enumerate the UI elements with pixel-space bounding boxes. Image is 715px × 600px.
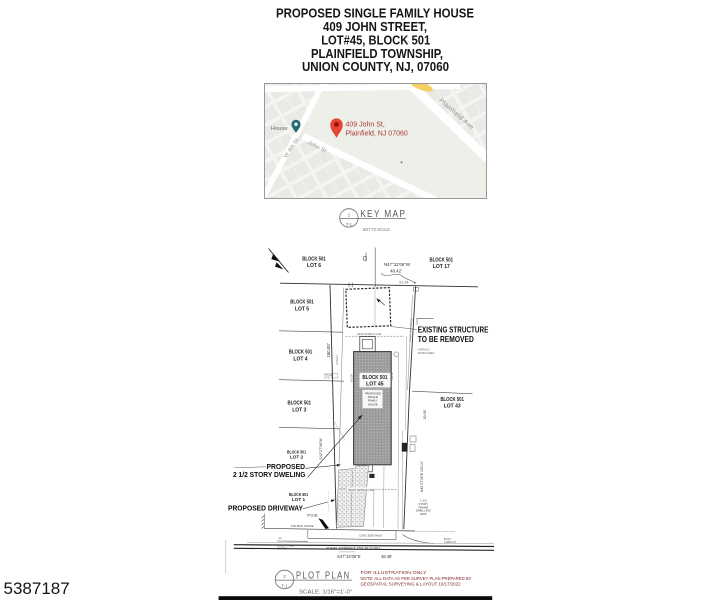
svg-text:LOT 17: LOT 17 <box>433 264 450 270</box>
svg-text:LOT 2: LOT 2 <box>290 455 304 460</box>
svg-text:EL 24: EL 24 <box>400 281 409 285</box>
svg-text:0.7'N: 0.7'N <box>324 377 330 380</box>
svg-text:150.00': 150.00' <box>326 343 331 357</box>
svg-text:N47°32'06"W: N47°32'06"W <box>384 262 411 267</box>
svg-text:TO BE REMOVED: TO BE REMOVED <box>418 335 474 344</box>
svg-text:FRONT SETBACK LINE: FRONT SETBACK LINE <box>348 489 374 492</box>
svg-text:2 1/2 STORY DWELING: 2 1/2 STORY DWELING <box>233 470 306 479</box>
svg-text:BLOCK 501: BLOCK 501 <box>302 256 326 262</box>
svg-text:BLOCK 501: BLOCK 501 <box>290 300 314 306</box>
svg-text:24: 24 <box>279 536 282 540</box>
svg-text:BLOCK 501: BLOCK 501 <box>289 350 313 356</box>
svg-text:PLOT PLAN: PLOT PLAN <box>296 571 351 582</box>
svg-text:S47°32'06"E: S47°32'06"E <box>337 554 361 559</box>
svg-text:EXISTING STRUCTURE: EXISTING STRUCTURE <box>418 325 489 334</box>
svg-text:BLOCK 501: BLOCK 501 <box>362 375 387 381</box>
svg-text:LOT 45: LOT 45 <box>366 382 384 388</box>
svg-text:S42°27'06"W: S42°27'06"W <box>319 438 323 460</box>
svg-text:BLOCK 501: BLOCK 501 <box>440 397 464 403</box>
svg-text:BLOCK 501: BLOCK 501 <box>288 401 312 407</box>
svg-text:48.42': 48.42' <box>390 269 402 274</box>
svg-text:LOT 6: LOT 6 <box>307 263 321 269</box>
svg-text:LOT 1: LOT 1 <box>292 497 306 502</box>
svg-text:Plainfield, NJ 07060: Plainfield, NJ 07060 <box>346 131 408 138</box>
svg-text:CONC SIDE WALK: CONC SIDE WALK <box>359 533 382 537</box>
svg-text:GEOSPATIAL SURVEYING & LAYOUT: GEOSPATIAL SURVEYING & LAYOUT 10/17/2022 <box>361 582 461 587</box>
svg-text:N42°27'06"E 150.00': N42°27'06"E 150.00' <box>420 461 424 493</box>
svg-text:101.50': 101.50' <box>390 371 394 380</box>
svg-text:NOTE: ALL DATA AS PER SURVEY P: NOTE: ALL DATA AS PER SURVEY PLAN PREPAR… <box>361 576 473 581</box>
svg-text:LOT 5: LOT 5 <box>295 307 309 313</box>
svg-text:T-1: T-1 <box>346 222 353 227</box>
svg-text:1: 1 <box>348 212 351 218</box>
svg-text:JOHN STREET (50' R.O.W.): JOHN STREET (50' R.O.W.) <box>326 546 381 550</box>
svg-text:ASPHALT: ASPHALT <box>418 347 430 351</box>
svg-text:LOT 3: LOT 3 <box>292 407 306 413</box>
svg-text:REAR SETBACK LINE: REAR SETBACK LINE <box>357 333 382 336</box>
svg-text:#405: #405 <box>420 512 427 516</box>
svg-text:FND MON ONLINE: FND MON ONLINE <box>291 524 314 528</box>
svg-text:NOT TO SCALE: NOT TO SCALE <box>363 227 390 232</box>
svg-text:LOT 43: LOT 43 <box>444 404 461 410</box>
svg-text:48.48': 48.48' <box>381 554 392 559</box>
svg-text:2: 2 <box>283 574 286 579</box>
svg-text:FOR ILLUSTRATION ONLY: FOR ILLUSTRATION ONLY <box>361 570 428 575</box>
svg-text:SCALE: 1/16"=1'-0": SCALE: 1/16"=1'-0" <box>299 590 352 596</box>
svg-text:T-1: T-1 <box>281 583 288 588</box>
svg-text:HOUSE: HOUSE <box>368 402 378 406</box>
svg-text:House: House <box>271 126 288 132</box>
svg-text:P.O.B.: P.O.B. <box>307 514 318 518</box>
svg-text:5387187: 5387187 <box>4 579 70 598</box>
svg-text:KEY MAP: KEY MAP <box>360 209 406 220</box>
svg-text:409 John St,: 409 John St, <box>346 121 385 128</box>
svg-text:BLOCK 501: BLOCK 501 <box>430 258 454 264</box>
svg-text:GRAVEL: GRAVEL <box>335 354 339 365</box>
svg-text:101.50': 101.50' <box>349 373 353 382</box>
svg-text:UNION COUNTY, NJ, 07060: UNION COUNTY, NJ, 07060 <box>302 59 449 74</box>
svg-text:PAVED AREA: PAVED AREA <box>418 351 435 355</box>
svg-text:LOT 4: LOT 4 <box>293 356 307 362</box>
svg-text:30.00': 30.00' <box>423 409 427 419</box>
svg-text:PROPOSED DRIVEWAY: PROPOSED DRIVEWAY <box>228 504 303 513</box>
